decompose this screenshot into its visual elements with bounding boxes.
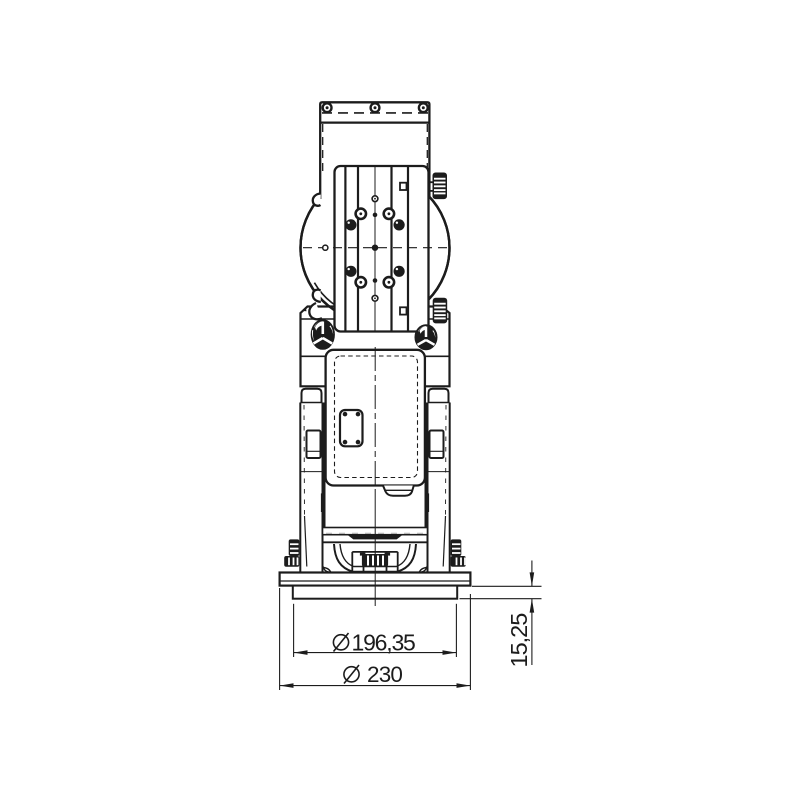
svg-text:15,25: 15,25 [506, 613, 532, 668]
svg-text:196,35: 196,35 [352, 630, 416, 656]
svg-text:230: 230 [367, 662, 402, 687]
